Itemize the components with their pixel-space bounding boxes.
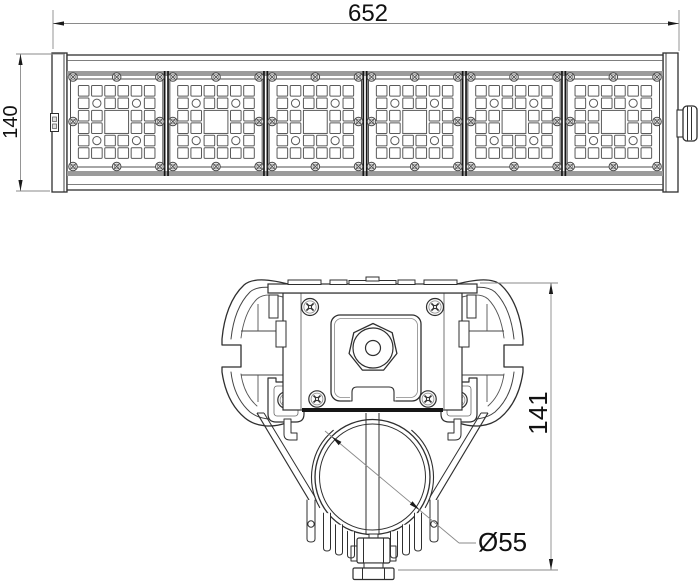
phillips-screw xyxy=(427,299,444,316)
led-module xyxy=(71,79,163,167)
screw xyxy=(156,162,165,171)
led-module xyxy=(170,79,262,167)
screw xyxy=(354,162,363,171)
screw xyxy=(268,162,277,171)
screw xyxy=(169,162,178,171)
screw xyxy=(566,117,575,126)
gear-tray xyxy=(276,293,469,410)
led-module xyxy=(369,79,461,167)
screw xyxy=(367,73,376,82)
screw xyxy=(454,117,463,126)
screw xyxy=(467,162,476,171)
phillips-screw xyxy=(309,391,325,407)
screw xyxy=(255,73,264,82)
screw xyxy=(169,117,178,126)
screw xyxy=(553,73,562,82)
screw xyxy=(609,73,618,82)
phillips-screw xyxy=(302,299,319,316)
screw xyxy=(112,73,121,82)
led-module xyxy=(468,79,560,167)
screw xyxy=(609,162,618,171)
screw xyxy=(454,73,463,82)
screw xyxy=(410,73,419,82)
drawing-canvas: 652 140 141 Ø55 xyxy=(0,0,700,581)
screw xyxy=(268,117,277,126)
technical-drawing: 652 140 141 Ø55 xyxy=(0,0,700,581)
screw xyxy=(467,117,476,126)
screw xyxy=(553,117,562,126)
screw xyxy=(255,162,264,171)
screw xyxy=(311,73,320,82)
screw xyxy=(653,73,662,82)
screw xyxy=(653,162,662,171)
screw xyxy=(212,73,221,82)
led-module xyxy=(269,79,361,167)
screw xyxy=(69,162,78,171)
screw xyxy=(410,162,419,171)
screw xyxy=(510,162,519,171)
screw xyxy=(212,162,221,171)
screw xyxy=(156,117,165,126)
screw xyxy=(311,162,320,171)
front-view xyxy=(51,53,698,192)
screw xyxy=(156,73,165,82)
screw xyxy=(367,162,376,171)
dim-height-label: 140 xyxy=(0,105,22,138)
dim-length-label: 652 xyxy=(348,0,388,27)
screw xyxy=(354,117,363,126)
mounting-bracket xyxy=(351,534,396,580)
screw xyxy=(69,117,78,126)
screw xyxy=(255,117,264,126)
screw xyxy=(169,73,178,82)
dim-diameter-label: Ø55 xyxy=(478,527,527,557)
screw xyxy=(467,73,476,82)
screw xyxy=(268,73,277,82)
led-module xyxy=(567,79,659,167)
screw xyxy=(510,73,519,82)
screw xyxy=(566,162,575,171)
end-cap-right xyxy=(663,53,678,192)
phillips-screw xyxy=(420,391,436,407)
screw xyxy=(454,162,463,171)
screw xyxy=(553,162,562,171)
screw xyxy=(566,73,575,82)
screw xyxy=(367,117,376,126)
screw xyxy=(653,117,662,126)
screw xyxy=(69,73,78,82)
dim-section-height-label: 141 xyxy=(523,391,553,434)
mounting-clip xyxy=(51,114,59,132)
screw xyxy=(354,73,363,82)
cable-gland xyxy=(677,106,697,141)
screw xyxy=(112,162,121,171)
